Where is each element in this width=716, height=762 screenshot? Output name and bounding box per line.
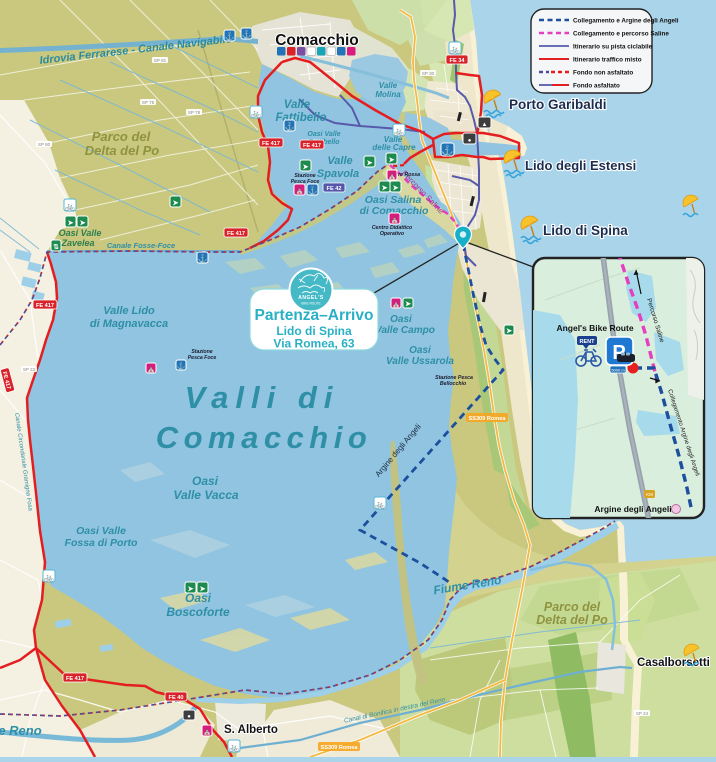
svg-text:SP 75: SP 75 <box>142 100 155 105</box>
svg-text:Fattibello: Fattibello <box>275 112 326 124</box>
svg-text:⚓: ⚓ <box>441 144 453 157</box>
svg-text:Fondo non asfaltato: Fondo non asfaltato <box>573 70 633 77</box>
svg-text:Via Romea, 63: Via Romea, 63 <box>273 337 354 351</box>
svg-text:Valle Lido: Valle Lido <box>103 305 155 317</box>
svg-text:⛪: ⛪ <box>203 727 211 736</box>
svg-text:Valle: Valle <box>284 99 311 111</box>
svg-text:➤: ➤ <box>405 301 411 308</box>
svg-text:FE 417: FE 417 <box>262 141 280 147</box>
svg-text:⇅: ⇅ <box>53 243 59 251</box>
svg-text:🚲: 🚲 <box>450 44 461 54</box>
svg-text:FE 34: FE 34 <box>450 58 466 64</box>
svg-text:BIKE ROUTE: BIKE ROUTE <box>301 302 320 306</box>
svg-text:Oasi Valle: Oasi Valle <box>59 228 102 238</box>
svg-text:➤: ➤ <box>80 220 86 227</box>
svg-text:KM: KM <box>646 492 653 497</box>
svg-text:⚓: ⚓ <box>308 185 318 195</box>
svg-text:SS309 Romea: SS309 Romea <box>468 416 506 422</box>
svg-text:Partenza–Arrivo: Partenza–Arrivo <box>255 307 374 324</box>
svg-text:●: ● <box>187 714 191 720</box>
svg-text:Parco del: Parco del <box>544 600 601 614</box>
svg-text:e Reno: e Reno <box>0 723 42 738</box>
svg-text:Porto Garibaldi: Porto Garibaldi <box>509 97 607 112</box>
svg-text:SP 78: SP 78 <box>188 110 201 115</box>
svg-text:FE 417: FE 417 <box>66 676 84 682</box>
svg-text:Angel's Bike Route: Angel's Bike Route <box>556 323 633 333</box>
svg-text:FE 417: FE 417 <box>303 143 321 149</box>
svg-text:ANGEL'S: ANGEL'S <box>298 295 324 301</box>
svg-text:Fondo asfaltato: Fondo asfaltato <box>573 83 620 90</box>
svg-text:Fossa di Porto: Fossa di Porto <box>65 537 139 549</box>
svg-text:Comacchio: Comacchio <box>156 420 373 455</box>
svg-text:⛪: ⛪ <box>388 171 396 180</box>
svg-text:SS309 Romea: SS309 Romea <box>320 745 358 751</box>
svg-text:Spavola: Spavola <box>317 168 359 180</box>
svg-text:⚓: ⚓ <box>225 31 235 41</box>
svg-text:Valle: Valle <box>379 81 398 90</box>
svg-text:S. Alberto: S. Alberto <box>224 724 278 736</box>
svg-text:SP 22: SP 22 <box>23 367 36 372</box>
svg-text:SP 24: SP 24 <box>636 711 649 716</box>
svg-text:FE 417: FE 417 <box>36 303 54 309</box>
svg-text:FE 42: FE 42 <box>327 186 342 192</box>
svg-text:Valle Vacca: Valle Vacca <box>173 488 238 502</box>
svg-text:Valle Campo: Valle Campo <box>375 325 435 336</box>
svg-text:⚓: ⚓ <box>198 253 208 263</box>
svg-text:FE 417: FE 417 <box>227 231 245 237</box>
svg-text:FE 40: FE 40 <box>169 695 184 701</box>
svg-text:Oasi Valle: Oasi Valle <box>76 525 126 537</box>
svg-text:Lido degli Estensi: Lido degli Estensi <box>525 158 636 173</box>
svg-text:Operativo: Operativo <box>380 231 404 237</box>
svg-text:➤: ➤ <box>173 200 179 207</box>
svg-text:Itinerario su pista ciclabile: Itinerario su pista ciclabile <box>573 44 653 51</box>
svg-text:Argine degli Angeli: Argine degli Angeli <box>594 504 671 514</box>
svg-text:Collegamento e Argine degli A: Collegamento e Argine degli Angeli <box>573 18 679 25</box>
svg-text:🚲: 🚲 <box>229 742 240 752</box>
svg-text:➤: ➤ <box>303 164 309 171</box>
svg-text:Valle: Valle <box>327 155 352 167</box>
svg-text:➤: ➤ <box>382 185 388 192</box>
svg-text:Pesca Foce: Pesca Foce <box>188 355 217 361</box>
svg-text:Canale Fosse-Foce: Canale Fosse-Foce <box>107 241 175 250</box>
svg-text:Lido di Spina: Lido di Spina <box>543 223 628 238</box>
svg-text:Molina: Molina <box>375 90 401 99</box>
svg-text:●: ● <box>468 138 472 144</box>
svg-text:⛪: ⛪ <box>295 186 303 195</box>
svg-text:SP 81: SP 81 <box>154 58 167 63</box>
svg-text:Valle Ussarola: Valle Ussarola <box>386 356 454 367</box>
svg-text:RENT: RENT <box>580 339 596 345</box>
svg-text:Comacchio: Comacchio <box>275 32 359 49</box>
svg-text:Oasi: Oasi <box>390 314 412 325</box>
svg-text:⛪: ⛪ <box>390 215 398 224</box>
svg-text:SP 80: SP 80 <box>38 142 51 147</box>
svg-text:🚲: 🚲 <box>44 572 55 582</box>
svg-text:Oasi Valle: Oasi Valle <box>307 131 340 138</box>
svg-text:Delta del Po: Delta del Po <box>536 613 608 627</box>
svg-text:⚓: ⚓ <box>242 29 252 39</box>
svg-text:➤: ➤ <box>393 185 399 192</box>
svg-text:Oasi: Oasi <box>409 345 431 356</box>
svg-text:di Magnavacca: di Magnavacca <box>90 318 168 330</box>
svg-text:🚲: 🚲 <box>251 108 262 118</box>
svg-text:Valli di: Valli di <box>185 380 340 415</box>
svg-text:➤: ➤ <box>506 328 512 335</box>
svg-text:⚓: ⚓ <box>177 361 186 370</box>
svg-text:5000 m: 5000 m <box>611 368 625 373</box>
svg-text:➤: ➤ <box>389 157 395 164</box>
svg-text:delle Capre: delle Capre <box>372 143 416 152</box>
svg-text:➤: ➤ <box>188 586 194 593</box>
svg-text:Zavelea: Zavelea <box>60 238 94 248</box>
svg-text:Bellocchio: Bellocchio <box>440 381 466 387</box>
svg-text:⚓: ⚓ <box>285 121 295 131</box>
svg-text:➤: ➤ <box>200 586 206 593</box>
svg-text:➤: ➤ <box>68 220 74 227</box>
svg-text:🚲: 🚲 <box>394 126 405 136</box>
svg-text:Collegamento e percorso Salin: Collegamento e percorso Saline <box>573 31 669 38</box>
svg-text:🚲: 🚲 <box>65 201 76 211</box>
svg-text:Itinerario traffico misto: Itinerario traffico misto <box>573 57 642 64</box>
svg-text:Parco del: Parco del <box>92 129 151 144</box>
svg-text:Delta del Po: Delta del Po <box>85 143 159 158</box>
svg-text:SP 30: SP 30 <box>422 71 435 76</box>
svg-text:➤: ➤ <box>367 160 373 167</box>
svg-text:🚲: 🚲 <box>375 499 386 509</box>
svg-text:Oasi: Oasi <box>192 474 219 488</box>
svg-text:⛪: ⛪ <box>147 364 155 373</box>
svg-text:▲: ▲ <box>482 122 488 128</box>
svg-text:Boscoforte: Boscoforte <box>166 605 230 619</box>
svg-text:⛪: ⛪ <box>392 299 400 308</box>
